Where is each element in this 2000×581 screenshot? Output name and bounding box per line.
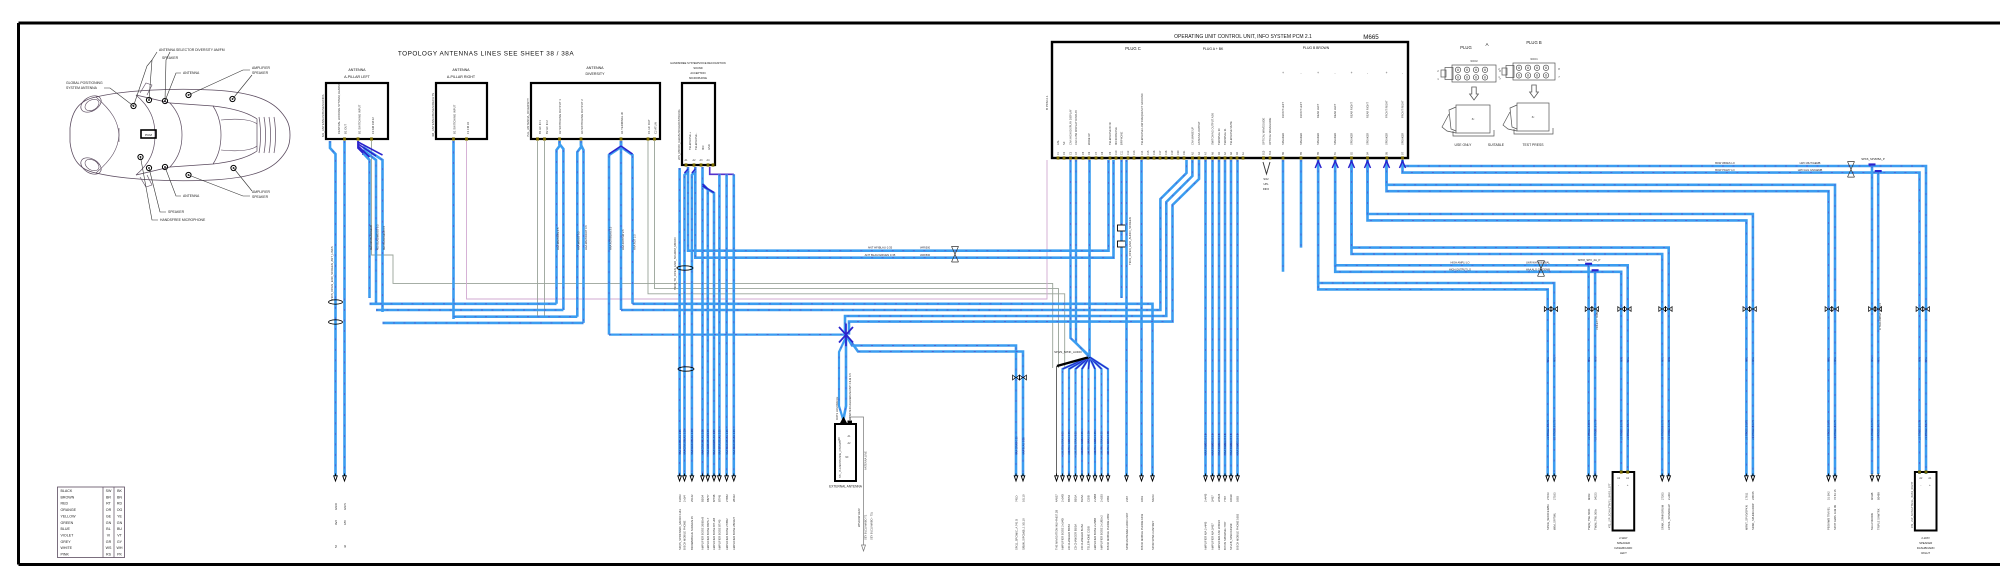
svg-text:-: -: [1334, 71, 1335, 75]
svg-text:LWL/TEL GRAU 0.35: LWL/TEL GRAU 0.35: [1107, 431, 1110, 455]
svg-text:17611: 17611: [1745, 492, 1749, 500]
svg-text:24B 65: 24B 65: [1751, 491, 1755, 500]
svg-text:HAA GRAU 0.35: HAA GRAU 0.35: [1016, 436, 1019, 455]
svg-text:HAA GRAU/BLAU 0.35: HAA GRAU/BLAU 0.35: [691, 429, 694, 455]
svg-text:LEFT: LEFT: [1620, 551, 1627, 555]
svg-text:C13: C13: [1133, 150, 1136, 155]
svg-text:YELLOW: YELLOW: [61, 514, 77, 518]
svg-text:WHITE: WHITE: [61, 546, 73, 550]
svg-text:REAR RIGHT: REAR RIGHT: [1350, 102, 1354, 118]
svg-text:2+5/4: 2+5/4: [683, 495, 687, 502]
svg-text:TOPOLOGY ANTENNAS LINES: TOPOLOGY ANTENNAS LINES SEE SHEET 38 / 3…: [398, 51, 574, 58]
svg-text:A4 SWITCHING OUTPUT 2: A4 SWITCHING OUTPUT 2: [580, 99, 584, 134]
svg-text:C17: C17: [1159, 150, 1162, 155]
svg-text:FRONT RIGHT: FRONT RIGHT: [1401, 100, 1405, 118]
svg-text:B0499: B0499: [1876, 492, 1880, 500]
svg-text:2+5BB: 2+5BB: [1093, 494, 1097, 502]
svg-text:TELEPHONE C/2/B: TELEPHONE C/2/B: [1087, 526, 1091, 550]
svg-text:FA5: FA5: [343, 520, 347, 525]
svg-text:SPEAKER: SPEAKER: [1281, 133, 1285, 145]
svg-text:RS: RS: [106, 553, 112, 557]
svg-text:MSL: MSL: [1877, 356, 1880, 362]
svg-text:SPOR SPNK CANTREY: SPOR SPNK CANTREY: [1151, 521, 1155, 550]
svg-text:PLUG: PLUG: [1460, 45, 1471, 50]
svg-text:F1 FM 34: F1 FM 34: [466, 122, 470, 134]
svg-text:VAR/500: VAR/500: [920, 246, 931, 250]
svg-text:CAN HIGH DISPLAY DISPLAY: CAN HIGH DISPLAY DISPLAY: [1069, 109, 1073, 145]
svg-text:HAA GRAU/BLAU 0.35: HAA GRAU/BLAU 0.35: [679, 429, 682, 455]
svg-text:T90S_OPEN_END_SCREEN_ANT_LINKS: T90S_OPEN_END_SCREEN_ANT_LINKS: [330, 246, 334, 300]
svg-text:2+54D: 2+54D: [1061, 494, 1065, 502]
svg-text:TW(M_TWL 500K: TW(M_TWL 500K: [1587, 508, 1591, 530]
svg-text:GR: GR: [106, 540, 112, 544]
svg-text:909/01: 909/01: [1530, 58, 1538, 61]
svg-text:SPDIF/ANTENNA AUDIO 2167: SPDIF/ANTENNA AUDIO 2167: [1125, 512, 1129, 550]
svg-text:HAA SW/GELB 0.5: HAA SW/GELB 0.5: [1237, 433, 1240, 455]
svg-text:TRIPLE SAWTRK: TRIPLE SAWTRK: [1876, 508, 1880, 530]
svg-text:ANTENNA SELECTOR DIVERSITY A: ANTENNA SELECTOR DIVERSITY AM/FM: [159, 48, 225, 52]
svg-text:MSL: MSL: [1553, 356, 1556, 362]
svg-text:TELEPHONE MUTE: TELEPHONE MUTE: [1229, 121, 1233, 145]
svg-text:FRONT RIGHT: FRONT RIGHT: [1385, 100, 1389, 118]
svg-text:APSOL_SPHN/DGLP: APSOL_SPHN/DGLP: [1667, 504, 1671, 530]
svg-text:ORANGE: ORANGE: [61, 508, 77, 512]
svg-text:B1 SWITCHING INPUT: B1 SWITCHING INPUT: [358, 104, 362, 134]
svg-text:GN: GN: [117, 521, 123, 525]
svg-text:CAN LOW DISPLAY DISPLAY: CAN LOW DISPLAY DISPLAY: [1074, 110, 1078, 145]
svg-text:SP(2S_SPRKS/MIK_MICRO 1143: SP(2S_SPRKS/MIK_MICRO 1143: [678, 509, 682, 550]
svg-text:LS RT/GELB 0.75: LS RT/GELB 0.75: [1871, 419, 1874, 440]
svg-text:CENTRAL LOCKING SYSTEM, ALARM: CENTRAL LOCKING SYSTEM, ALARM: [337, 84, 341, 134]
svg-text:+: +: [1317, 71, 1319, 75]
svg-text:HAA GRAU/BLAU 0.35: HAA GRAU/BLAU 0.35: [726, 429, 729, 455]
svg-text:4E0 BLAU/WEISS 0.5: 4E0 BLAU/WEISS 0.5: [376, 224, 380, 250]
svg-text:C19: C19: [1171, 150, 1174, 155]
svg-text:B1 HF IN 1: B1 HF IN 1: [538, 120, 542, 134]
svg-text:C/2/B: C/2/B: [1087, 495, 1091, 502]
svg-text:VIOLET: VIOLET: [61, 533, 75, 537]
svg-text:HAA SW/GELB 0.5: HAA SW/GELB 0.5: [1218, 433, 1221, 455]
svg-text:2/457: 2/457: [1211, 495, 1215, 502]
svg-text:MSL: MSL: [1661, 356, 1664, 362]
svg-text:BF/PHONE: BF/PHONE: [1120, 131, 1124, 145]
svg-text:C14: C14: [1141, 150, 1144, 155]
svg-text:INFO: INFO: [1263, 187, 1269, 191]
svg-text:DIVERSITY: DIVERSITY: [586, 72, 606, 76]
svg-text:ANTENNA: ANTENNA: [586, 66, 604, 70]
svg-text:LS RT/GELB 0.75: LS RT/GELB 0.75: [1834, 419, 1837, 440]
svg-text:LS RT/GELB 0.75: LS RT/GELB 0.75: [1627, 419, 1630, 440]
svg-text:2+303: 2+303: [1667, 492, 1671, 500]
svg-text:54223: 54223: [1593, 492, 1597, 500]
svg-text:2B422: 2B422: [732, 494, 736, 502]
svg-text:10L10: 10L10: [1022, 494, 1026, 502]
svg-text:ANT HF/BLAU 0.35: ANT HF/BLAU 0.35: [868, 246, 893, 250]
svg-text:A2 SWITCHING OUTPUT 1: A2 SWITCHING OUTPUT 1: [558, 99, 562, 134]
svg-text:MSL: MSL: [1547, 356, 1550, 362]
svg-text:LS RT/GELB 0.75: LS RT/GELB 0.75: [1668, 419, 1671, 440]
svg-text:SP+FB_SPEN 164/39: SP+FB_SPEN 164/39: [1229, 523, 1233, 550]
svg-text:MSL: MSL: [1834, 356, 1837, 362]
svg-text:LWL/TEL GRAU 0.35: LWL/TEL GRAU 0.35: [1081, 431, 1084, 455]
svg-text:RED: RED: [61, 502, 69, 506]
svg-text:LWO ALG GN/GEMB: LWO ALG GN/GEMB: [1798, 168, 1823, 172]
svg-text:LWL/TEL GRAU 0.35: LWL/TEL GRAU 0.35: [1068, 431, 1071, 455]
svg-text:C11: C11: [1121, 150, 1124, 155]
svg-text:SP(11_SPC/MIC_A 741 D: SP(11_SPC/MIC_A 741 D: [1015, 519, 1019, 550]
svg-text:WH: WH: [117, 546, 123, 550]
svg-text:SEY B (CLIMA/BO - T5j: SEY B (CLIMA/BO - T5j: [870, 512, 874, 540]
svg-text:SOUND: SOUND: [693, 66, 702, 70]
svg-text:ANTENNA LINE: ANTENNA LINE: [864, 451, 868, 470]
svg-text:MSL: MSL: [1594, 356, 1597, 362]
svg-text:AMPLIFIER BOSE BT/45: AMPLIFIER BOSE BT/45: [718, 519, 722, 550]
svg-text:1643: 1643: [1140, 496, 1144, 502]
svg-text:BR: BR: [106, 495, 111, 499]
svg-text:TEST PRESS: TEST PRESS: [1522, 143, 1544, 147]
svg-text:ANTENNA: ANTENNA: [348, 68, 366, 72]
svg-text:-: -: [1920, 483, 1921, 487]
svg-text:2167: 2167: [1125, 496, 1129, 502]
svg-text:B1 SWITCHING INPUT: B1 SWITCHING INPUT: [453, 104, 457, 134]
svg-text:2/4524: 2/4524: [1217, 493, 1221, 502]
svg-text:HAA SW/GELB 0.5: HAA SW/GELB 0.5: [1205, 433, 1208, 455]
svg-text:9/3HB: 9/3HB: [1870, 492, 1874, 500]
svg-text:W(M_SP/TWL: W(M_SP/TWL: [1552, 512, 1556, 530]
svg-text:GREY: GREY: [61, 540, 72, 544]
svg-text:MSL: MSL: [1828, 356, 1831, 362]
svg-text:BU: BU: [117, 527, 122, 531]
svg-text:OG: OG: [117, 508, 123, 512]
svg-text:LS RT/GELB 0.75: LS RT/GELB 0.75: [1620, 419, 1623, 440]
svg-text:UPL: UPL: [1263, 182, 1269, 186]
svg-text:C21: C21: [1183, 150, 1186, 155]
svg-text:S/B(W_S/PCM(B_1 10L10: S/B(W_S/PCM(B_1 10L10: [1022, 518, 1026, 550]
svg-text:LWL/TEL GRAU 0.35: LWL/TEL GRAU 0.35: [1094, 431, 1097, 455]
svg-text:LWL/TEL GRAU 0.35: LWL/TEL GRAU 0.35: [1075, 431, 1078, 455]
svg-text:RIGHT: RIGHT: [1921, 551, 1930, 555]
svg-text:HAA GRAU/BLAU 0.35: HAA GRAU/BLAU 0.35: [707, 429, 710, 455]
svg-text:GND: GND: [707, 144, 711, 150]
svg-text:-: -: [1618, 483, 1619, 487]
svg-text:2+4/45: 2+4/45: [1204, 493, 1208, 502]
svg-text:B BOX MOBILE PHONE 1683: B BOX MOBILE PHONE 1683: [1236, 513, 1240, 550]
svg-text:AMPLIFIER N/A 2+4/45: AMPLIFIER N/A 2+4/45: [1204, 521, 1208, 550]
svg-text:BROWN: BROWN: [61, 495, 75, 499]
svg-text:54223: 54223: [1151, 494, 1155, 502]
svg-text:FRONT LEFT: FRONT LEFT: [1281, 102, 1285, 118]
svg-text:C2 ATLIN: C2 ATLIN: [654, 122, 658, 134]
svg-text:LS RT/GELB 0.75: LS RT/GELB 0.75: [1752, 419, 1755, 440]
svg-text:ANT BLAU/GRUEN 0.35: ANT BLAU/GRUEN 0.35: [865, 253, 896, 257]
svg-text:BB/T7: BB/T7: [706, 494, 710, 502]
svg-text:GN/S: GN/S: [343, 503, 347, 510]
svg-text:GN: GN: [106, 521, 112, 525]
svg-text:LS RT/GELB 0.75: LS RT/GELB 0.75: [1919, 419, 1922, 440]
svg-text:SEY B (CLIMA/BO T1: SEY B (CLIMA/BO T1: [864, 514, 868, 540]
svg-text:ANTENNA: ANTENNA: [183, 71, 200, 75]
svg-text:MSL: MSL: [1752, 356, 1755, 362]
svg-text:B5/54: B5/54: [701, 494, 705, 502]
svg-text:SPEAKER: SPEAKER: [1333, 133, 1337, 145]
svg-text:HAA ROT 2.5: HAA ROT 2.5: [633, 234, 637, 250]
svg-text:T90/1_OPEN_END_AUDIO_SCREEN: T90/1_OPEN_END_AUDIO_SCREEN: [1128, 217, 1132, 265]
svg-text:PLUG C: PLUG C: [1125, 46, 1141, 51]
svg-text:52: 52: [334, 544, 338, 548]
svg-text:-: -: [1402, 71, 1403, 75]
svg-text:B2 HF IN 2: B2 HF IN 2: [545, 120, 549, 134]
svg-text:533.2/ WORN: 533.2/ WORN: [1870, 513, 1874, 530]
svg-text:MRNT_SPVD/SPKN: MRNT_SPVD/SPKN: [1745, 505, 1749, 530]
svg-text:+: +: [1282, 71, 1284, 75]
svg-text:AMPLIFIER BOSE BB/T+7: AMPLIFIER BOSE BB/T+7: [706, 517, 710, 550]
svg-text:A-PILLAR LEFT: A-PILLAR LEFT: [344, 75, 371, 79]
svg-text:VI: VI: [107, 533, 110, 537]
svg-text:RT: RT: [106, 502, 112, 506]
svg-text:AMPLIFIER BOSE 26/85+B: AMPLIFIER BOSE 26/85+B: [701, 517, 705, 550]
svg-text:7787: 7787: [1223, 496, 1227, 502]
svg-text:72 53 15: 72 53 15: [1833, 489, 1837, 500]
svg-text:SPEAKER: SPEAKER: [252, 71, 269, 75]
svg-text:TELEPHONE -: TELEPHONE -: [694, 133, 698, 150]
svg-text:MSL: MSL: [1746, 356, 1749, 362]
svg-text:AMPLIFIER: AMPLIFIER: [252, 190, 270, 194]
svg-text:CD CHANGER B5/54: CD CHANGER B5/54: [1067, 524, 1071, 550]
svg-text:MSL: MSL: [1871, 356, 1874, 362]
svg-text:AMPLIFIER: AMPLIFIER: [252, 66, 270, 70]
svg-text:41453: 41453: [678, 494, 682, 502]
svg-text:TELEPHONE W NF: TELEPHONE W NF: [1108, 122, 1112, 145]
svg-text:SIG!: SIG!: [1263, 177, 1268, 181]
svg-text:4T1_LSP_SCHALTTAFEL_BASS_LEFT: 4T1_LSP_SCHALTTAFEL_BASS_LEFT: [1609, 483, 1612, 528]
svg-text:LS RT/GELB 0.75: LS RT/GELB 0.75: [1828, 419, 1831, 440]
svg-text:AMPLIFIER BOSE 27/B52: AMPLIFIER BOSE 27/B52: [725, 518, 729, 550]
svg-text:F2 AM FM 32: F2 AM FM 32: [371, 117, 375, 134]
svg-text:+: +: [1351, 71, 1353, 75]
svg-text:SPEAKER: SPEAKER: [1385, 133, 1389, 145]
svg-text:REAR LEFT: REAR LEFT: [1316, 103, 1320, 118]
svg-text:SPEAKER: SPEAKER: [168, 210, 185, 214]
svg-text:AMPLIFIER BOSE 2+1/B5+2: AMPLIFIER BOSE 2+1/B5+2: [1100, 515, 1104, 550]
svg-text:SPEAKER: SPEAKER: [1617, 541, 1630, 545]
svg-text:4T1_LSP_SCHALTTAFEL_BASS_RIGHT: 4T1_LSP_SCHALTTAFEL_BASS_RIGHT: [1911, 481, 1914, 528]
svg-text:YE: YE: [117, 514, 122, 518]
svg-text:BN: BN: [117, 495, 122, 499]
svg-text:AMPLIFIER BOSE B/T+4B: AMPLIFIER BOSE B/T+4B: [712, 518, 716, 550]
svg-text:B12: B12: [1269, 150, 1272, 155]
svg-text:GREEN: GREEN: [61, 521, 74, 525]
svg-text:DASHBOARD: DASHBOARD: [1615, 546, 1633, 550]
svg-text:ACCEPTION: ACCEPTION: [690, 71, 705, 75]
svg-text:T90R_TO_OPEN_END_SCHIRM_MICRO: T90R_TO_OPEN_END_SCHIRM_MICRO: [673, 237, 677, 290]
svg-text:WS: WS: [106, 546, 112, 550]
svg-text:BROWN/BLUE SCREEN 25: BROWN/BLUE SCREEN 25: [690, 516, 694, 550]
svg-text:B10: B10: [1263, 150, 1266, 155]
svg-text:LWO WHT/GEMB: LWO WHT/GEMB: [1800, 161, 1821, 165]
svg-text:SPK8_SPV_2A_P: SPK8_SPV_2A_P: [1578, 258, 1601, 262]
svg-text:HAA ROT/SW 2.5: HAA ROT/SW 2.5: [621, 229, 625, 250]
svg-text:LS RT/GELB 0.75: LS RT/GELB 0.75: [1877, 419, 1880, 440]
svg-text:STL_PLAN/ANTENNE_CHASSIS: STL_PLAN/ANTENNE_CHASSIS: [839, 440, 842, 478]
svg-text:SRNK_SPNK/DRUM: SRNK_SPNK/DRUM: [1660, 504, 1664, 530]
svg-text:MSL: MSL: [1925, 356, 1928, 362]
svg-text:SPOT AMPL JAM 09: SPOT AMPL JAM 09: [1833, 505, 1837, 530]
svg-text:NF: NF: [845, 456, 849, 459]
svg-text:LWL/TEL GRAU 0.35: LWL/TEL GRAU 0.35: [1062, 431, 1065, 455]
svg-text:WINDOW HEAT: WINDOW HEAT: [857, 508, 861, 527]
svg-text:HIGH OUTPUT LO: HIGH OUTPUT LO: [1449, 267, 1471, 271]
svg-text:SPEAKER: SPEAKER: [162, 56, 179, 60]
svg-text:4M_ANTENNA/BASES/RECHTS: 4M_ANTENNA/BASES/RECHTS: [431, 93, 435, 137]
svg-text:HAA WEISS 0.5: HAA WEISS 0.5: [577, 231, 581, 250]
svg-text:HANDSFREE SYSTEM/VOICE RECOGNI: HANDSFREE SYSTEM/VOICE RECOGNITION: [670, 61, 725, 65]
svg-text:PLUG B: PLUG B: [1526, 40, 1542, 45]
svg-text:HIGH AMPLI LO: HIGH AMPLI LO: [1450, 260, 1469, 264]
svg-text:SW: SW: [106, 489, 112, 493]
svg-text:USE ONLY: USE ONLY: [1455, 143, 1473, 147]
svg-text:BT/45: BT/45: [718, 494, 722, 502]
svg-text:HAA GRAU/BLAU 0.35: HAA GRAU/BLAU 0.35: [719, 429, 722, 455]
svg-text:HAA SW/GELB 0.5: HAA SW/GELB 0.5: [1230, 433, 1233, 455]
svg-text:2+1B5: 2+1B5: [1100, 494, 1104, 502]
svg-text:ROT3 HAVONICLE: ROT3 HAVONICLE: [835, 397, 839, 420]
svg-text:A1 TERMINAL 30: A1 TERMINAL 30: [620, 111, 624, 134]
svg-text:THE NAVIGATION INU 4A637.2B: THE NAVIGATION INU 4A637.2B: [1055, 510, 1059, 550]
svg-text:TERMINAL 30: TERMINAL 30: [1217, 128, 1221, 145]
svg-text:PLUG A + BK: PLUG A + BK: [1203, 47, 1224, 51]
svg-text:27203: 27203: [1660, 492, 1664, 500]
svg-text:HAA GRAU/BLAU 0.35: HAA GRAU/BLAU 0.35: [733, 429, 736, 455]
svg-text:2-WAY: 2-WAY: [1619, 536, 1628, 540]
svg-text:HAA ROT/BLAU 2.5: HAA ROT/BLAU 2.5: [609, 226, 613, 250]
svg-text:B BOX MOBILE PHONE: B BOX MOBILE PHONE: [683, 520, 687, 550]
svg-text:B5/5A: B5/5A: [1074, 494, 1078, 502]
svg-text:HAA GRAU/BLAU 0.35: HAA GRAU/BLAU 0.35: [684, 429, 687, 455]
svg-text:HAA WEISS/BL 0.5: HAA WEISS/BL 0.5: [556, 227, 560, 250]
svg-text:AMPLIFIER BOSE 2+5/4D: AMPLIFIER BOSE 2+5/4D: [1061, 518, 1065, 550]
svg-text:BLACK: BLACK: [61, 489, 73, 493]
svg-text:HAA GRAU/BLAU 0.35: HAA GRAU/BLAU 0.35: [702, 429, 705, 455]
svg-text:AMPLIFIER BOSE 2+/5BB: AMPLIFIER BOSE 2+/5BB: [1093, 518, 1097, 550]
svg-text:+: +: [1386, 71, 1388, 75]
svg-text:BL/5A: BL/5A: [1080, 494, 1084, 502]
svg-text:LWR WHT/GELB/AL: LWR WHT/GELB/AL: [1526, 260, 1550, 264]
svg-text:VIOLETT TRIBUT: VIOLETT TRIBUT: [1595, 309, 1599, 330]
svg-text:27B52: 27B52: [725, 494, 729, 502]
svg-text:2-WAY: 2-WAY: [1921, 536, 1930, 540]
svg-text:SPEAKER: SPEAKER: [1366, 133, 1370, 145]
svg-text:C16: C16: [1153, 150, 1156, 155]
svg-text:CAN WAKE UP: CAN WAKE UP: [1191, 127, 1195, 145]
svg-text:4A637: 4A637: [1055, 494, 1059, 502]
svg-text:B1 OUT: B1 OUT: [344, 124, 348, 134]
svg-text:-: -: [1300, 71, 1301, 75]
svg-text:CD CHANGER B5/5A: CD CHANGER B5/5A: [1074, 524, 1078, 550]
svg-text:MSL: MSL: [1919, 356, 1922, 362]
svg-text:LS RT/GELB 0.75: LS RT/GELB 0.75: [1588, 419, 1591, 440]
svg-text:DASHBOARD: DASHBOARD: [1917, 546, 1935, 550]
svg-text:REAR RIGHT: REAR RIGHT: [1366, 102, 1370, 118]
svg-text:HAA BLAU 0.35: HAA BLAU 0.35: [1023, 437, 1026, 455]
svg-text:LS RT/GELB 0.75: LS RT/GELB 0.75: [1661, 419, 1664, 440]
svg-text:4E0 035 BLAU/GELB: 4E0 035 BLAU/GELB: [369, 225, 373, 250]
svg-text:+: +: [1929, 483, 1931, 487]
svg-text:B PCM 2.1: B PCM 2.1: [1045, 95, 1049, 110]
svg-text:MSL: MSL: [1668, 356, 1671, 362]
svg-text:MICROPHONE: MICROPHONE: [1114, 127, 1118, 145]
svg-text:BL: BL: [106, 527, 110, 531]
svg-text:NF: NF: [1062, 141, 1066, 145]
svg-text:TW(M_TWL 500x: TW(M_TWL 500x: [1593, 508, 1597, 530]
svg-text:EXTERNAL ANTENNA: EXTERNAL ANTENNA: [829, 485, 863, 489]
svg-text:MIC: MIC: [701, 145, 705, 150]
svg-text:FRONT LEFT: FRONT LEFT: [1299, 102, 1303, 118]
svg-text:HAA WEISS/ROT 0.5: HAA WEISS/ROT 0.5: [584, 225, 588, 250]
svg-text:MID3: MID3: [1587, 493, 1591, 500]
svg-text:24B2: 24B2: [1106, 495, 1110, 502]
svg-text:SWITCHING OUTPUT ASK: SWITCHING OUTPUT ASK: [1211, 113, 1215, 145]
svg-text:BLUE: BLUE: [61, 527, 71, 531]
svg-text:B POS SPKN/SIG 7787: B POS SPKN/SIG 7787: [1223, 521, 1227, 550]
svg-text:PLUG B BROWN: PLUG B BROWN: [1303, 46, 1330, 50]
svg-text:TELEPHONE +: TELEPHONE +: [688, 132, 692, 150]
svg-text:SPEAKER: SPEAKER: [1919, 541, 1932, 545]
svg-text:OPTICAL WAVEGUIDE: OPTICAL WAVEGUIDE: [1262, 117, 1266, 145]
svg-text:AMPLIFIER ASK 2/45/24: AMPLIFIER ASK 2/45/24: [1217, 520, 1221, 550]
svg-text:+12V: +12V: [838, 437, 841, 443]
svg-text:SPEAKER: SPEAKER: [252, 195, 269, 199]
svg-text:HAA ALG GN/GEMB: HAA ALG GN/GEMB: [1526, 267, 1550, 271]
svg-text:ANTENNA: ANTENNA: [183, 194, 200, 198]
svg-text:MSL: MSL: [1627, 356, 1630, 362]
svg-text:741D: 741D: [1015, 496, 1019, 502]
svg-text:HAA SW/GELB 0.5: HAA SW/GELB 0.5: [1212, 433, 1215, 455]
svg-text:CD CHANGER BL/5A: CD CHANGER BL/5A: [1080, 524, 1084, 550]
svg-text:REAR LEFT: REAR LEFT: [1333, 103, 1337, 118]
svg-text:TERMINAL 31: TERMINAL 31: [1223, 128, 1227, 145]
svg-text:LWL/TEL GRAU 0.35: LWL/TEL GRAU 0.35: [1088, 431, 1091, 455]
svg-text:SPEAKER: SPEAKER: [1316, 133, 1320, 145]
svg-text:OPERATING UNIT CONTROL UNIT,: OPERATING UNIT CONTROL UNIT, INFO SYSTEM…: [1174, 34, 1312, 40]
svg-text:OPTICAL WAVEGUIDE: OPTICAL WAVEGUIDE: [1268, 117, 1272, 145]
svg-text:GE: GE: [106, 514, 112, 518]
svg-text:MSL: MSL: [1588, 356, 1591, 362]
svg-text:42: 42: [343, 544, 347, 548]
svg-text:27163: 27163: [1552, 492, 1556, 500]
svg-text:TELEPHONE LOW FREQUENCY GROUN: TELEPHONE LOW FREQUENCY GROUND: [1140, 93, 1144, 145]
svg-text:+: +: [1627, 483, 1629, 487]
svg-text:ANTENNA OUTPUT: ANTENNA OUTPUT: [1197, 121, 1201, 145]
svg-text:WAKE UP: WAKE UP: [1087, 133, 1091, 145]
svg-text:LS RT/GELB 0.75: LS RT/GELB 0.75: [1547, 419, 1550, 440]
svg-text:LS RT/GELB 0.75: LS RT/GELB 0.75: [1553, 419, 1556, 440]
svg-text:UPDATED HIGH/WAVE/ANTI FILM 4.: UPDATED HIGH/WAVE/ANTI FILM 4.5: [848, 373, 852, 420]
svg-text:SRNK_SPHN/CADRP: SRNK_SPHN/CADRP: [1751, 503, 1755, 530]
svg-text:SPEAKER: SPEAKER: [1350, 133, 1354, 145]
svg-text:4E0 BLAU/GELB 0.5: 4E0 BLAU/GELB 0.5: [382, 225, 386, 250]
svg-text:GN/D: GN/D: [334, 503, 338, 510]
svg-text:BOW WIRES LO: BOW WIRES LO: [1715, 161, 1735, 165]
svg-text:HAA SW/GELB 0.5: HAA SW/GELB 0.5: [1224, 433, 1227, 455]
svg-text:MSL: MSL: [1620, 356, 1623, 362]
svg-text:SP(2S_SPNK_AUDIO: SP(2S_SPNK_AUDIO: [1054, 350, 1082, 354]
svg-text:BOW PIGMY LO: BOW PIGMY LO: [1715, 168, 1734, 172]
svg-text:-: -: [1367, 71, 1368, 75]
svg-text:25142: 25142: [690, 494, 694, 502]
svg-text:51 5H2: 51 5H2: [1827, 491, 1831, 500]
svg-text:ASL: ASL: [1056, 140, 1060, 145]
svg-text:B BOX MOBILE PHONE 1643: B BOX MOBILE PHONE 1643: [1140, 513, 1144, 550]
